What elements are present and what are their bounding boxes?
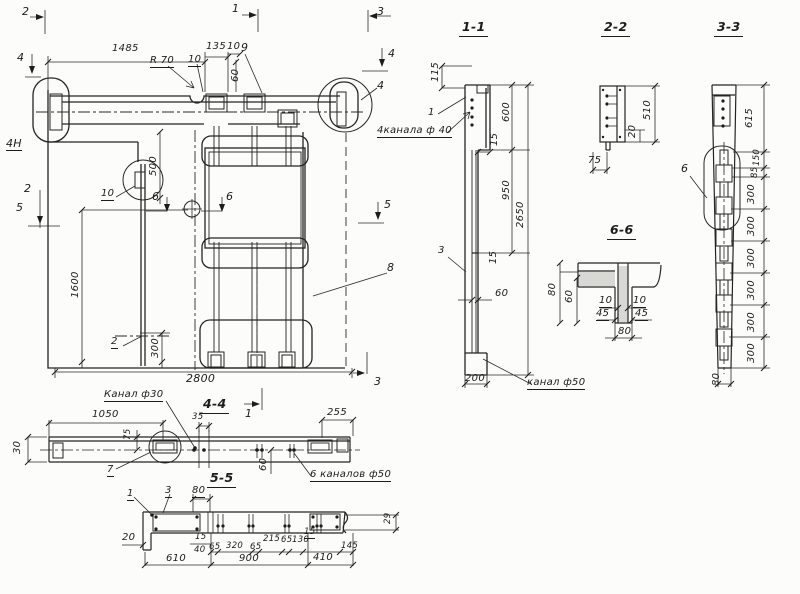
dim-60-plan: 60 bbox=[231, 69, 241, 82]
dim-2800: 2800 bbox=[186, 373, 215, 384]
dim-20-55: 20 bbox=[122, 533, 135, 543]
dim-300-5: 300 bbox=[747, 312, 757, 332]
section-marker-5-right: 5 bbox=[384, 199, 391, 210]
section-marker-6-b: 6 bbox=[226, 191, 233, 202]
section-title-2-2: 2-2 bbox=[601, 21, 630, 37]
dim-60-sec11: 60 bbox=[495, 289, 508, 299]
section-marker-2-left: 2 bbox=[24, 183, 31, 194]
section-title-3-3: 3-3 bbox=[714, 21, 743, 37]
blueprint-sheet: 2 1 3 4 4 1485 R 70 135 10 10 9 60 4 4Н … bbox=[0, 0, 800, 594]
dim-950: 950 bbox=[502, 180, 512, 200]
section-marker-6-a: 6 bbox=[152, 191, 159, 202]
dim-1050: 1050 bbox=[92, 410, 119, 420]
dim-1485: 1485 bbox=[112, 44, 139, 54]
pos-6-sec33: 6 bbox=[681, 163, 688, 174]
dim-300-1: 300 bbox=[747, 184, 757, 204]
dim-10-b: 10 bbox=[227, 42, 240, 52]
dim-80-left-66: 80 bbox=[548, 283, 558, 296]
pos-7: 7 bbox=[107, 465, 114, 477]
dim-65-c-55: 65 bbox=[281, 536, 292, 545]
radius-note-r70: R 70 bbox=[150, 56, 174, 68]
dim-60-66: 60 bbox=[565, 290, 575, 303]
section-marker-5-left: 5 bbox=[16, 202, 23, 213]
drawing-linework bbox=[0, 0, 800, 594]
dim-80-sec33: 80 bbox=[712, 373, 722, 386]
dim-320-55: 320 bbox=[226, 542, 243, 551]
dim-115: 115 bbox=[431, 62, 441, 82]
dim-80-55: 80 bbox=[192, 486, 205, 498]
section-marker-4-left: 4 bbox=[17, 52, 24, 63]
dim-20-sec22: 20 bbox=[628, 125, 638, 138]
dim-300-6: 300 bbox=[747, 343, 757, 363]
section-marker-4-right: 4 bbox=[388, 48, 395, 59]
dim-45-left-66: 45 bbox=[596, 309, 609, 321]
side-view-dims bbox=[28, 401, 353, 476]
pos-9: 9 bbox=[241, 42, 248, 53]
dim-40-55: 40 bbox=[194, 546, 205, 555]
section-marker-3-bottom: 3 bbox=[374, 376, 381, 387]
section-2-2-geometry bbox=[600, 86, 625, 150]
dim-10-left-66: 10 bbox=[599, 296, 612, 308]
dim-300-4: 300 bbox=[747, 280, 757, 300]
dim-2650: 2650 bbox=[516, 201, 526, 228]
pos-3-55: 3 bbox=[165, 486, 172, 498]
section-title-1-1: 1-1 bbox=[459, 21, 488, 37]
dim-255: 255 bbox=[327, 408, 347, 418]
pos-2: 2 bbox=[111, 337, 118, 349]
view-6-6-geometry bbox=[578, 263, 661, 323]
dim-15-mid: 15 bbox=[489, 251, 499, 264]
dim-10-a: 10 bbox=[188, 55, 201, 67]
mark-4n: 4Н bbox=[6, 138, 22, 151]
dim-45-right-66: 45 bbox=[635, 309, 648, 321]
dim-900-55: 900 bbox=[239, 554, 259, 564]
view-5-5-dims bbox=[122, 494, 399, 566]
plan-view-geometry bbox=[33, 78, 372, 368]
dim-15-top: 15 bbox=[490, 133, 500, 146]
plan-dim-lines bbox=[25, 9, 391, 410]
dim-500: 500 bbox=[149, 156, 159, 176]
dim-29-55: 29 bbox=[384, 513, 393, 524]
dim-510: 510 bbox=[643, 100, 653, 120]
view-title-6-6: 6-6 bbox=[607, 224, 636, 240]
pos-1-55: 1 bbox=[127, 489, 134, 501]
side-view-geometry bbox=[40, 430, 360, 468]
dim-150: 150 bbox=[753, 149, 762, 166]
note-6-channels-50: 6 каналов ф50 bbox=[310, 470, 391, 482]
section-marker-3-top: 3 bbox=[377, 6, 384, 17]
section-1-1-geometry bbox=[465, 85, 490, 375]
dim-300-2: 300 bbox=[747, 216, 757, 236]
dim-75-side: 75 bbox=[124, 429, 133, 440]
note-channel-50: канал ф50 bbox=[527, 378, 585, 390]
pos-8: 8 bbox=[387, 262, 394, 273]
dim-15-a-55: 15 bbox=[195, 533, 206, 542]
section-marker-1-bottom: 1 bbox=[245, 408, 252, 419]
pos-3-sec11: 3 bbox=[438, 246, 445, 256]
dim-410-55: 410 bbox=[313, 553, 333, 563]
note-channel-30: Канал ф30 bbox=[104, 390, 163, 402]
section-marker-1-top: 1 bbox=[232, 3, 239, 14]
dim-10-right-66: 10 bbox=[633, 296, 646, 308]
dim-30-side: 30 bbox=[13, 441, 23, 454]
section-3-3-dims bbox=[690, 85, 770, 387]
dim-215-55: 215 bbox=[263, 535, 280, 544]
dim-35: 35 bbox=[192, 413, 203, 422]
pos-1-sec11: 1 bbox=[428, 108, 435, 118]
section-marker-2-top: 2 bbox=[22, 6, 29, 17]
dim-145-55: 145 bbox=[341, 542, 358, 551]
dim-85: 85 bbox=[751, 167, 760, 178]
note-4-channels-40: 4канала ф 40 bbox=[377, 126, 452, 138]
dim-200: 200 bbox=[465, 374, 485, 384]
dim-15-b-55: 15 bbox=[304, 528, 315, 539]
dim-65-a-55: 65 bbox=[209, 543, 220, 552]
pos-4: 4 bbox=[377, 80, 384, 91]
dim-610-55: 610 bbox=[166, 554, 186, 564]
dim-65-b-55: 65 bbox=[250, 543, 261, 552]
dim-300-plan: 300 bbox=[151, 338, 161, 358]
dim-80-bottom-66: 80 bbox=[618, 327, 631, 337]
dim-1600: 1600 bbox=[71, 271, 81, 298]
dim-60-side: 60 bbox=[259, 458, 269, 471]
view-5-5-geometry bbox=[143, 512, 348, 550]
dim-300-3: 300 bbox=[747, 248, 757, 268]
section-3-3-geometry bbox=[704, 85, 740, 374]
dim-600: 600 bbox=[502, 102, 512, 122]
dim-75-sec22: 75 bbox=[588, 156, 601, 166]
view-title-5-5: 5-5 bbox=[207, 472, 236, 488]
dim-615: 615 bbox=[745, 108, 755, 128]
pos-10: 10 bbox=[101, 189, 114, 201]
dim-135: 135 bbox=[206, 42, 226, 52]
view-title-4-4: 4-4 bbox=[200, 398, 229, 414]
